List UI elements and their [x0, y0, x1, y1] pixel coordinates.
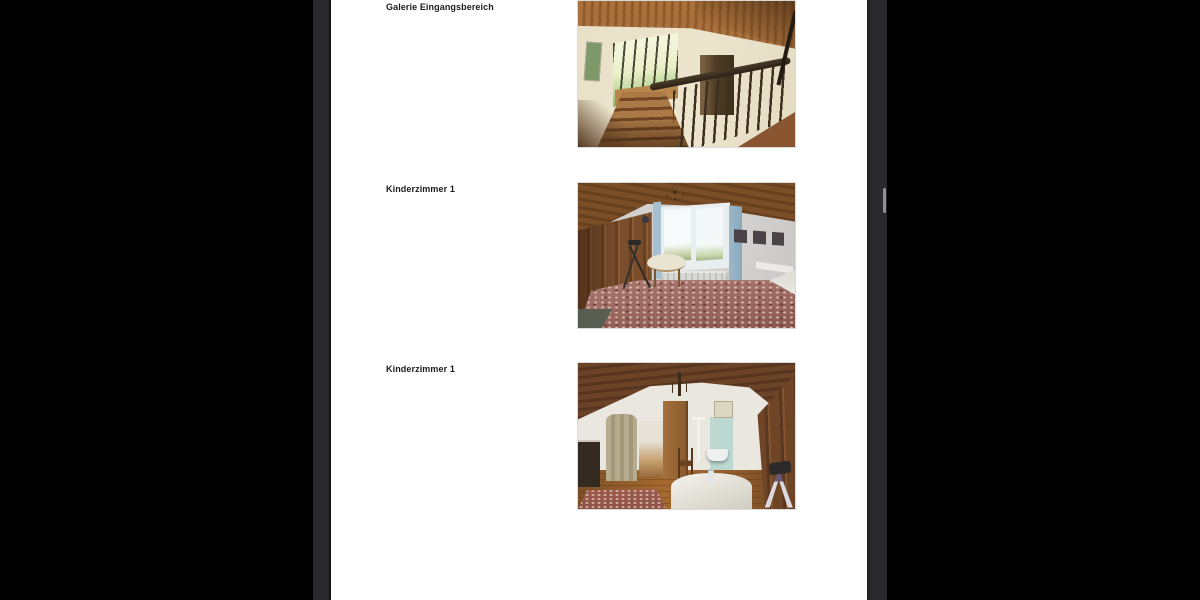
letterbox-left [0, 0, 313, 600]
pdf-viewer: Galerie Eingangsbereich Kinderzimmer 1 [313, 0, 887, 600]
photo2-oriental-rug [578, 280, 795, 328]
photo3-teal-panel [710, 417, 733, 470]
photo2-curtain-right [729, 206, 742, 291]
childrens-room-photo-1 [578, 183, 795, 328]
photo3-rug [578, 489, 665, 509]
childrens-room-photo-2 [578, 363, 795, 509]
photo3-chandelier [678, 372, 681, 384]
staircase-gallery-photo [578, 1, 795, 147]
photo3-sink [707, 449, 728, 461]
photo3-dresser [578, 440, 600, 487]
photo-caption: Kinderzimmer 1 [386, 364, 455, 374]
photo3-curtain [606, 414, 636, 481]
photo-caption: Galerie Eingangsbereich [386, 2, 494, 12]
photo-caption: Kinderzimmer 1 [386, 184, 455, 194]
letterbox-right [887, 0, 1200, 600]
photo1-wall-picture [583, 41, 602, 81]
document-page: Galerie Eingangsbereich Kinderzimmer 1 [331, 0, 867, 600]
scrollbar-thumb[interactable] [883, 188, 886, 213]
